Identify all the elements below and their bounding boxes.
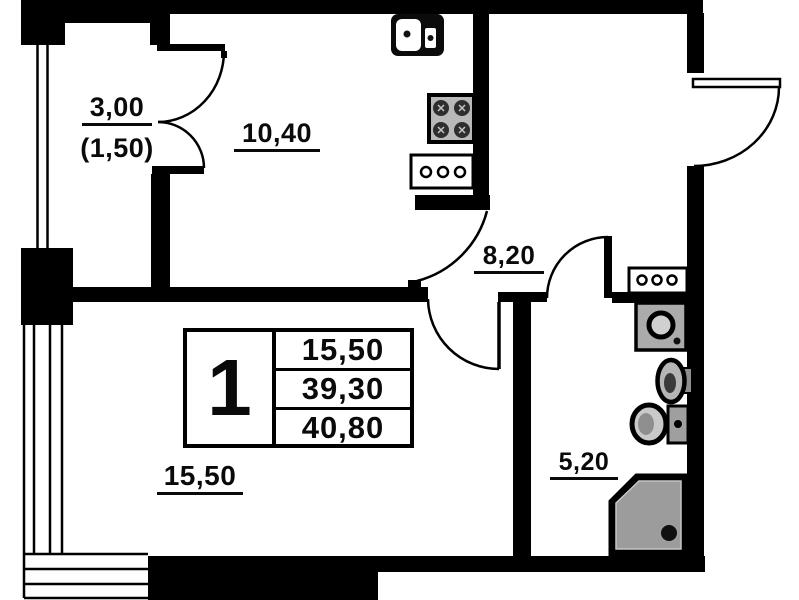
- toilet-tank-button: [674, 420, 682, 428]
- living-room-area-label: 15,50: [157, 461, 243, 495]
- wall: [66, 287, 428, 302]
- wall: [687, 13, 704, 73]
- bathroom-area-label: 5,20: [550, 449, 618, 480]
- counter-knob: [455, 167, 465, 177]
- balcony-window-arc: [158, 122, 204, 168]
- wall: [151, 174, 170, 302]
- stove-icon: [429, 95, 474, 142]
- counter-knob: [638, 276, 647, 285]
- wall: [150, 0, 703, 14]
- washer-door: [649, 313, 673, 337]
- shower-drain: [661, 525, 677, 541]
- balcony-area-label: 3,00: [82, 93, 152, 126]
- counter-knob: [668, 276, 677, 285]
- balcony-door-arc: [158, 51, 224, 122]
- kitchen-sink-icon: [391, 14, 444, 56]
- wall: [21, 0, 150, 23]
- washing-machine-icon: [636, 303, 686, 350]
- entry-door-leaf: [693, 79, 780, 87]
- stamp-living-area: 15,50: [276, 332, 410, 368]
- sink-drain: [404, 31, 411, 38]
- kitchen-area-label: 10,40: [234, 119, 320, 152]
- walls: [21, 0, 705, 600]
- living-room-door-arc: [428, 299, 499, 369]
- stamp-total-area: 40,80: [276, 407, 410, 446]
- balcony-window-leaf: [152, 166, 204, 174]
- sink-faucet-dot: [428, 35, 434, 41]
- apartment-stamp: 1 15,50 39,30 40,80: [183, 328, 414, 448]
- bathroom-door-arc: [547, 237, 608, 298]
- wall: [148, 556, 378, 600]
- balcony-door-leaf: [157, 44, 225, 51]
- kitchen-door-leaf: [415, 195, 490, 210]
- entry-door-arc: [694, 87, 779, 166]
- toilet-icon: [632, 405, 688, 443]
- stamp-rooms-count: 1: [187, 332, 276, 444]
- balcony-reduced-area-label: (1,50): [72, 134, 162, 162]
- washer-knob: [674, 338, 681, 345]
- floor-plan-drawing: [0, 0, 799, 600]
- wall: [21, 248, 73, 325]
- shower-tray: [612, 477, 685, 553]
- counter-knob: [421, 167, 431, 177]
- floor-plan: 3,00 (1,50) 10,40 8,20 15,50 5,20 1 15,5…: [0, 0, 799, 600]
- counter-knob: [438, 167, 448, 177]
- counter-knob: [653, 276, 662, 285]
- bathroom-door-leaf: [604, 236, 612, 298]
- wall: [150, 14, 170, 45]
- wall: [513, 293, 531, 572]
- washbasin-icon: [658, 360, 693, 402]
- toilet-bowl-inner: [638, 413, 654, 435]
- shower-icon: [612, 477, 685, 553]
- stamp-areas: 15,50 39,30 40,80: [276, 332, 410, 444]
- kitchen-counter-icon: [411, 155, 473, 188]
- washbasin-drain: [664, 373, 676, 393]
- bathroom-counter-icon: [629, 268, 687, 293]
- stamp-area-without-balcony: 39,30: [276, 368, 410, 407]
- hallway-area-label: 8,20: [474, 242, 544, 274]
